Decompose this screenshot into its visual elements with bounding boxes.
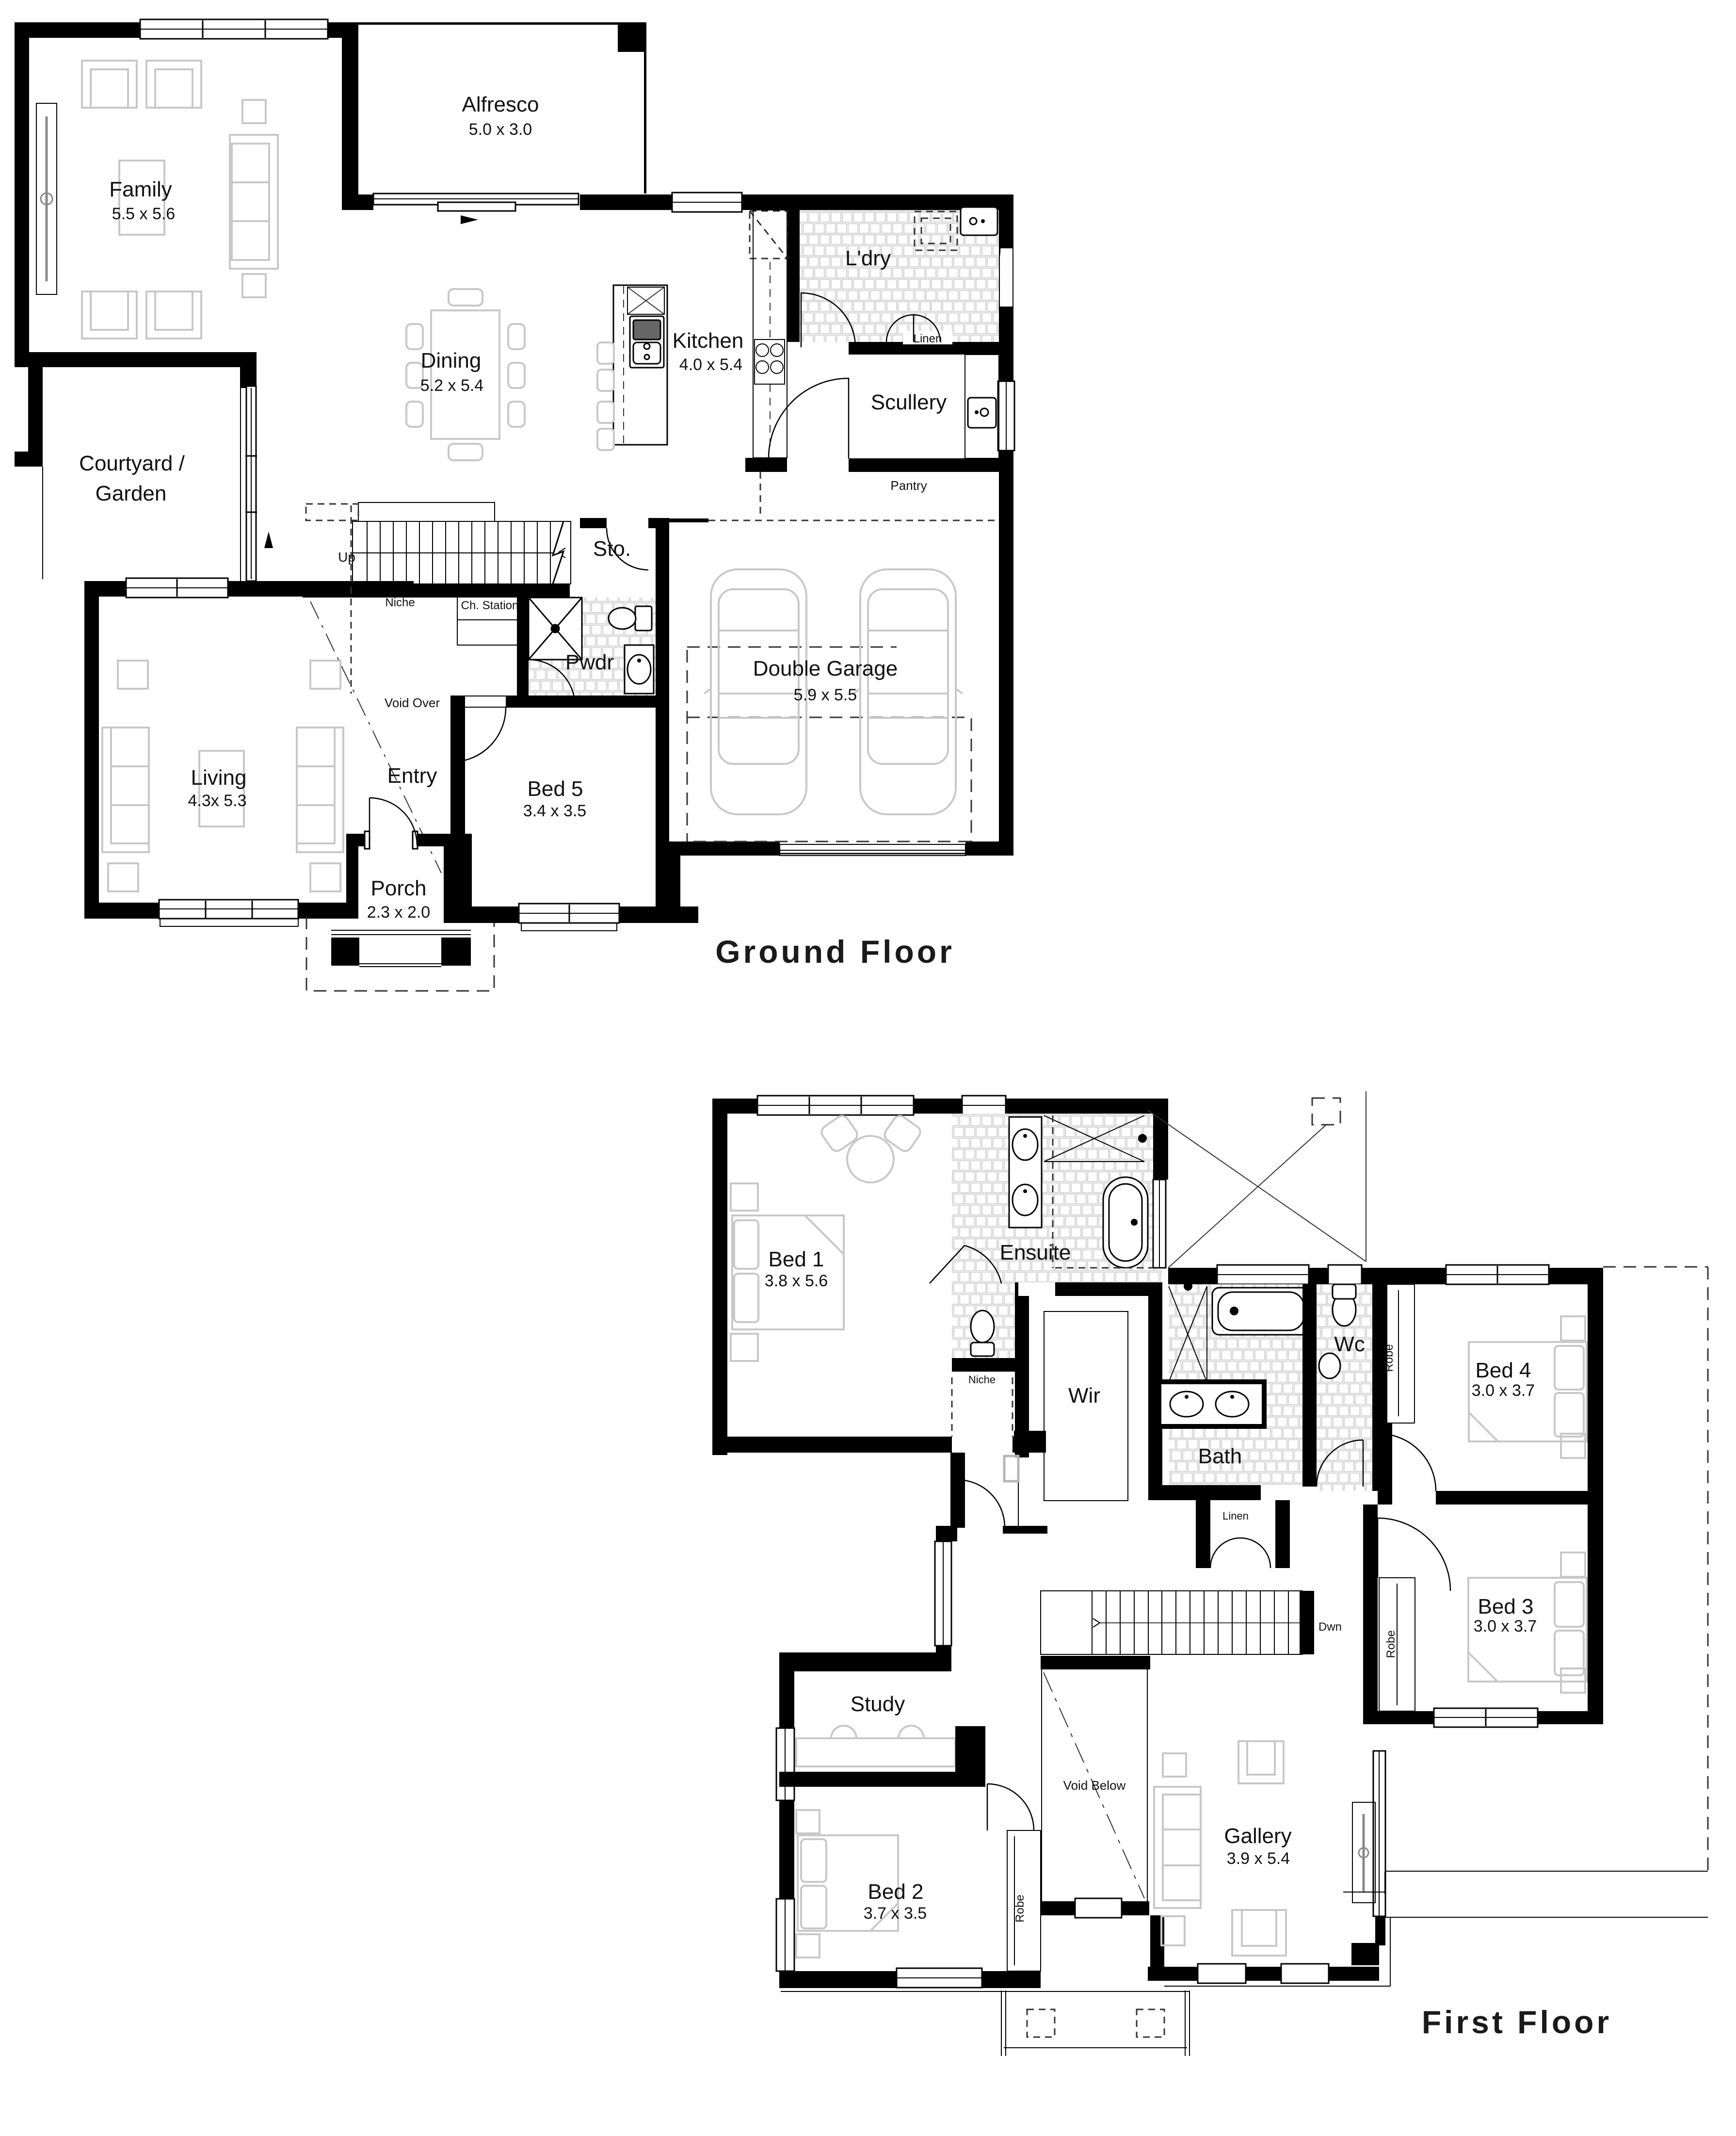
svg-text:Bed 5: Bed 5 [528, 777, 583, 801]
svg-text:Robe: Robe [1384, 1630, 1398, 1658]
svg-text:Entry: Entry [387, 764, 437, 788]
svg-text:2.3 x 2.0: 2.3 x 2.0 [367, 903, 430, 922]
svg-text:5.2 x 5.4: 5.2 x 5.4 [420, 376, 483, 395]
svg-text:Gallery: Gallery [1224, 1824, 1291, 1848]
svg-text:Pwdr: Pwdr [565, 650, 614, 674]
svg-text:First Floor: First Floor [1422, 2004, 1612, 2040]
svg-text:Living: Living [191, 766, 247, 790]
svg-text:Alfresco: Alfresco [462, 93, 539, 116]
svg-text:Robe: Robe [1382, 1344, 1396, 1372]
svg-text:5.5 x 5.6: 5.5 x 5.6 [112, 205, 175, 223]
svg-text:Ch. Station: Ch. Station [461, 599, 519, 612]
svg-text:Bed 1: Bed 1 [769, 1247, 824, 1271]
svg-text:3.4 x 3.5: 3.4 x 3.5 [523, 802, 586, 820]
svg-text:Wc: Wc [1334, 1332, 1365, 1356]
svg-text:L'dry: L'dry [845, 246, 891, 270]
svg-text:Linen: Linen [1222, 1510, 1249, 1522]
svg-text:Void Below: Void Below [1063, 1778, 1126, 1793]
svg-text:Robe: Robe [1013, 1894, 1027, 1922]
svg-text:Bed 2: Bed 2 [868, 1880, 924, 1904]
svg-text:Bath: Bath [1198, 1444, 1242, 1468]
svg-text:Dining: Dining [421, 349, 482, 372]
svg-text:Courtyard /: Courtyard / [79, 452, 185, 475]
svg-text:3.0 x 3.7: 3.0 x 3.7 [1474, 1617, 1537, 1635]
svg-text:3.7 x 3.5: 3.7 x 3.5 [864, 1904, 927, 1923]
svg-text:Bed 3: Bed 3 [1478, 1595, 1534, 1618]
svg-text:4.0 x 5.4: 4.0 x 5.4 [679, 356, 742, 374]
svg-text:4.3x 5.3: 4.3x 5.3 [188, 792, 247, 810]
svg-text:Linen: Linen [914, 332, 942, 345]
svg-text:Double Garage: Double Garage [753, 657, 898, 680]
svg-text:5.0 x 3.0: 5.0 x 3.0 [469, 120, 532, 139]
svg-text:Garden: Garden [96, 482, 167, 505]
svg-text:3.9 x 5.4: 3.9 x 5.4 [1227, 1849, 1290, 1868]
svg-text:Ensuite: Ensuite [1000, 1241, 1071, 1264]
svg-text:Family: Family [109, 178, 172, 201]
svg-text:Sto.: Sto. [593, 537, 631, 561]
svg-text:Kitchen: Kitchen [673, 329, 744, 353]
svg-text:Up: Up [338, 550, 355, 565]
svg-text:Porch: Porch [371, 876, 427, 900]
svg-text:Void Over: Void Over [385, 696, 440, 710]
svg-text:Wir: Wir [1068, 1384, 1100, 1408]
svg-text:3.8 x 5.6: 3.8 x 5.6 [765, 1272, 828, 1290]
svg-text:3.0 x 3.7: 3.0 x 3.7 [1472, 1381, 1535, 1400]
svg-text:Scullery: Scullery [871, 390, 947, 414]
svg-text:Niche: Niche [385, 596, 415, 609]
svg-text:Pantry: Pantry [890, 478, 927, 493]
svg-text:Niche: Niche [968, 1374, 996, 1386]
svg-text:5.9 x 5.5: 5.9 x 5.5 [794, 686, 857, 704]
svg-text:Ground Floor: Ground Floor [715, 934, 955, 970]
svg-text:Bed 4: Bed 4 [1476, 1359, 1531, 1382]
svg-text:Dwn: Dwn [1318, 1620, 1342, 1634]
svg-text:Study: Study [851, 1692, 905, 1716]
